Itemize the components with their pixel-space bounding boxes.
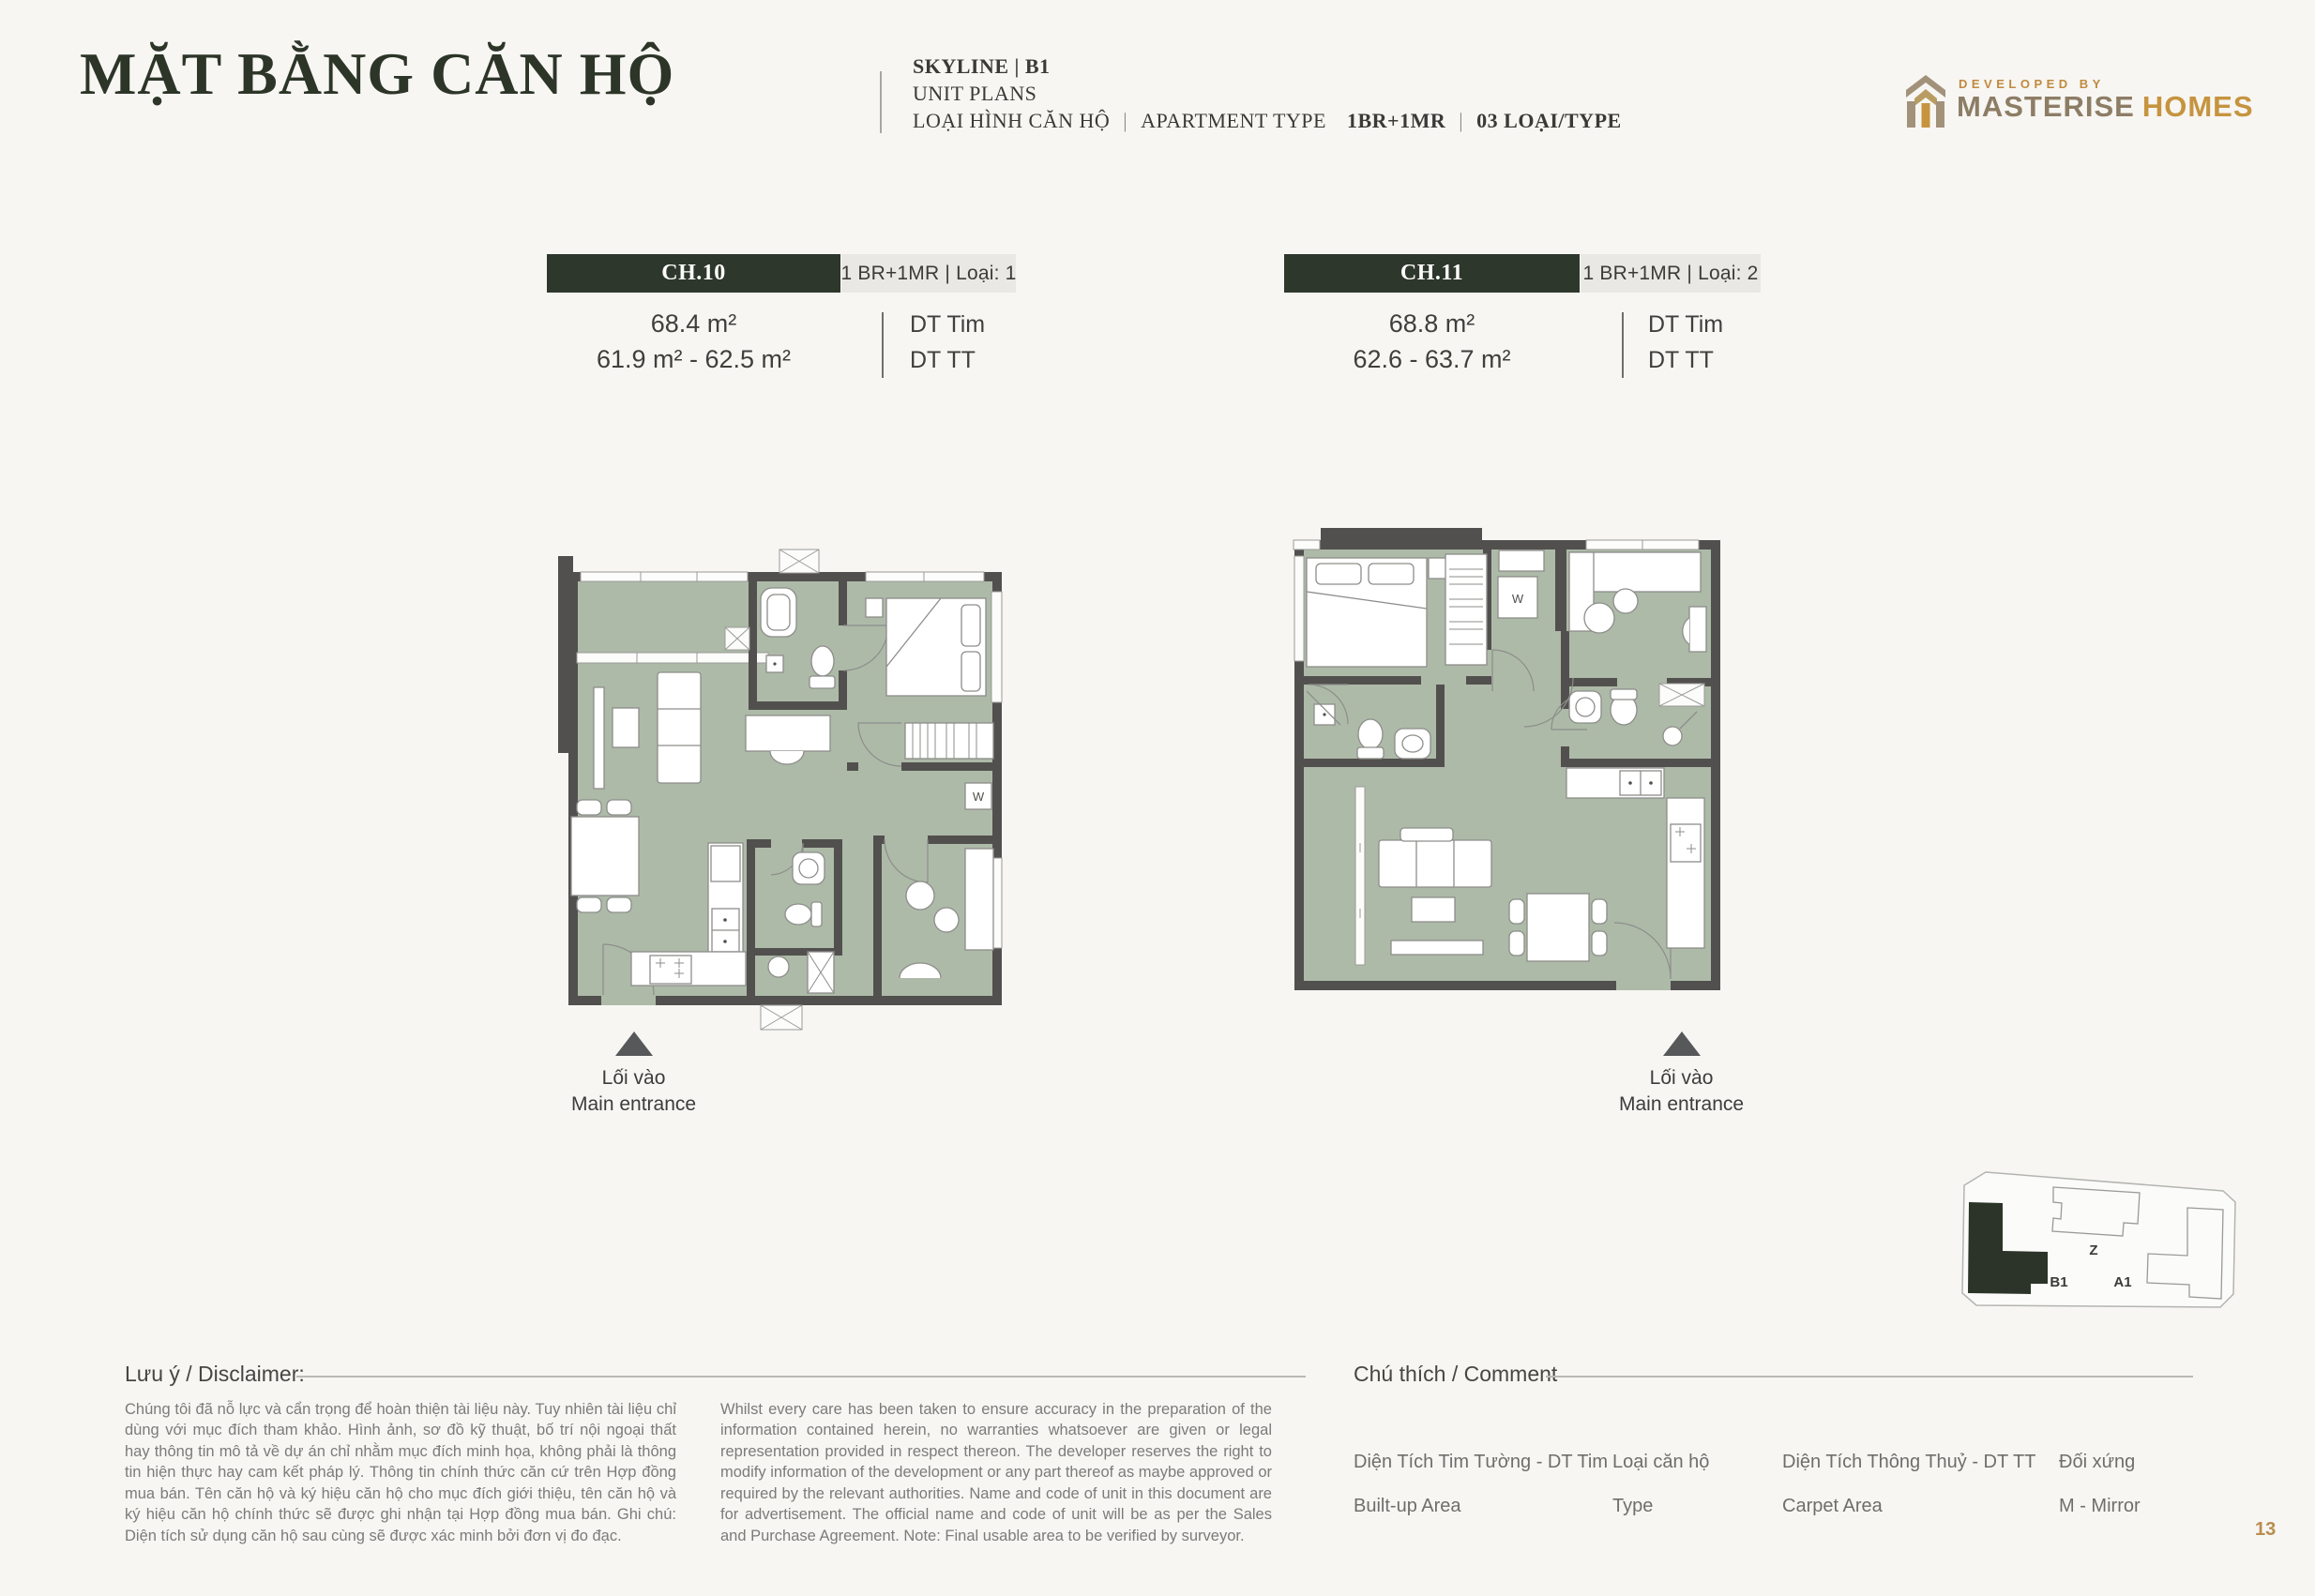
site-keyplan: Z B1 A1	[1956, 1165, 2275, 1319]
disclaimer-heading: Lưu ý / Disclaimer:	[125, 1362, 305, 1387]
entrance-marker-ch10: Lối vào Main entrance	[571, 1031, 696, 1119]
unit-ch10-separator	[882, 312, 884, 378]
disclaimer-body-en: Whilst every care has been taken to ensu…	[720, 1399, 1272, 1546]
entrance-triangle-icon	[1663, 1031, 1701, 1056]
sink-2	[1569, 691, 1601, 723]
unit-ch11-type-badge: 1 BR+1MR | Loại: 2	[1581, 254, 1761, 293]
label-z: Z	[2089, 1242, 2097, 1258]
apartment-type-line: LOẠI HÌNH CĂN HỘ|APARTMENT TYPE1BR+1MR|0…	[913, 109, 1622, 133]
laundry-table	[1499, 550, 1544, 571]
stove	[1671, 824, 1701, 862]
developer-name: MASTERISEHOMES	[1957, 90, 2254, 124]
toilet	[1357, 719, 1384, 759]
unit-ch10-label-builtup: DT Tim	[910, 311, 985, 339]
unit-ch11-code-bar: CH.11	[1284, 254, 1580, 293]
unit-ch11-area-builtup: 68.8 m²	[1284, 309, 1580, 339]
shaft	[808, 952, 834, 993]
unit-ch10-type-badge: 1 BR+1MR | Loại: 1	[841, 254, 1016, 293]
floorplan-ch10: W	[556, 547, 1036, 1036]
type-label-en: APARTMENT TYPE	[1141, 109, 1326, 132]
legend-item-builtup: Diện Tích Tim Tường - DT Tim Built-up Ar…	[1354, 1452, 1608, 1517]
mr-desk	[1689, 607, 1706, 652]
daybed	[965, 849, 993, 950]
wardrobe	[905, 723, 993, 759]
masterise-logo-icon	[1902, 75, 1949, 128]
disclaimer-rule	[296, 1376, 1306, 1378]
legend-heading: Chú thích / Comment	[1354, 1362, 1557, 1387]
header-divider	[880, 71, 882, 133]
entrance-en: Main entrance	[1619, 1092, 1744, 1118]
label-a1: A1	[2113, 1274, 2131, 1290]
brochure-page: MẶT BẰNG CĂN HỘ SKYLINE | B1 UNIT PLANS …	[0, 0, 2315, 1596]
nightstand	[866, 598, 883, 617]
sink-2	[793, 852, 825, 884]
wall-wing	[558, 556, 573, 753]
nightstand	[1429, 558, 1447, 579]
tv-console	[594, 687, 604, 789]
unit-ch11-label-builtup: DT Tim	[1648, 311, 1723, 339]
bed	[1307, 558, 1427, 667]
entrance-vi: Lối vào	[571, 1065, 696, 1092]
type-count: 03 LOẠI/TYPE	[1476, 109, 1622, 132]
washer-label: W	[1512, 592, 1524, 606]
disclaimer-body-vi: Chúng tôi đã nỗ lực và cẩn trọng để hoàn…	[125, 1399, 676, 1546]
developer-logo: DEVELOPED BY MASTERISEHOMES	[1902, 73, 2296, 129]
unit-ch10-label-carpet: DT TT	[910, 347, 976, 374]
stove	[650, 956, 691, 984]
unit-ch11-label-carpet: DT TT	[1648, 347, 1714, 374]
entrance-marker-ch11: Lối vào Main entrance	[1619, 1031, 1744, 1119]
bed	[886, 598, 986, 696]
entrance-en: Main entrance	[571, 1092, 696, 1118]
type-label-vi: LOẠI HÌNH CĂN HỘ	[913, 109, 1110, 132]
dining-table	[571, 800, 639, 912]
entrance-triangle-icon	[615, 1031, 653, 1056]
unit-ch11-separator	[1622, 312, 1624, 378]
legend-rule	[1546, 1376, 2193, 1378]
page-title: MẶT BẰNG CĂN HỘ	[80, 39, 674, 109]
coffee-table	[613, 708, 639, 747]
tv-console	[1391, 941, 1483, 955]
washer-label: W	[973, 790, 985, 804]
sink	[1395, 729, 1430, 759]
unit-plans-label: UNIT PLANS	[913, 82, 1036, 106]
legend-item-type: Loại căn hộ Type	[1612, 1452, 1709, 1517]
project-name: SKYLINE | B1	[913, 54, 1051, 79]
type-value: 1BR+1MR	[1347, 109, 1445, 132]
bathtub-sink	[761, 588, 796, 637]
toilet	[809, 646, 835, 688]
washer	[768, 956, 789, 977]
unit-ch10-code-bar: CH.10	[547, 254, 840, 293]
coffee-table	[1412, 897, 1455, 922]
legend-item-carpet: Diện Tích Thông Thuỷ - DT TT Carpet Area	[1782, 1452, 2036, 1517]
floorplan-ch11: W	[1288, 517, 1727, 1008]
developer-tagline: DEVELOPED BY	[1959, 77, 2105, 91]
legend-item-mirror: Đối xứng M - Mirror	[2059, 1452, 2141, 1517]
shaft	[1659, 684, 1704, 706]
sofa	[658, 672, 701, 783]
page-number: 13	[2255, 1519, 2276, 1541]
toilet-2	[785, 902, 822, 926]
unit-ch10-area-builtup: 68.4 m²	[547, 309, 840, 339]
unit-ch10-area-carpet: 61.9 m² - 62.5 m²	[547, 345, 840, 374]
label-b1: B1	[2050, 1274, 2067, 1290]
unit-ch11-area-carpet: 62.6 - 63.7 m²	[1284, 345, 1580, 374]
entrance-vi: Lối vào	[1619, 1065, 1744, 1092]
toilet-2	[1611, 689, 1637, 725]
wardrobe	[1445, 554, 1487, 665]
